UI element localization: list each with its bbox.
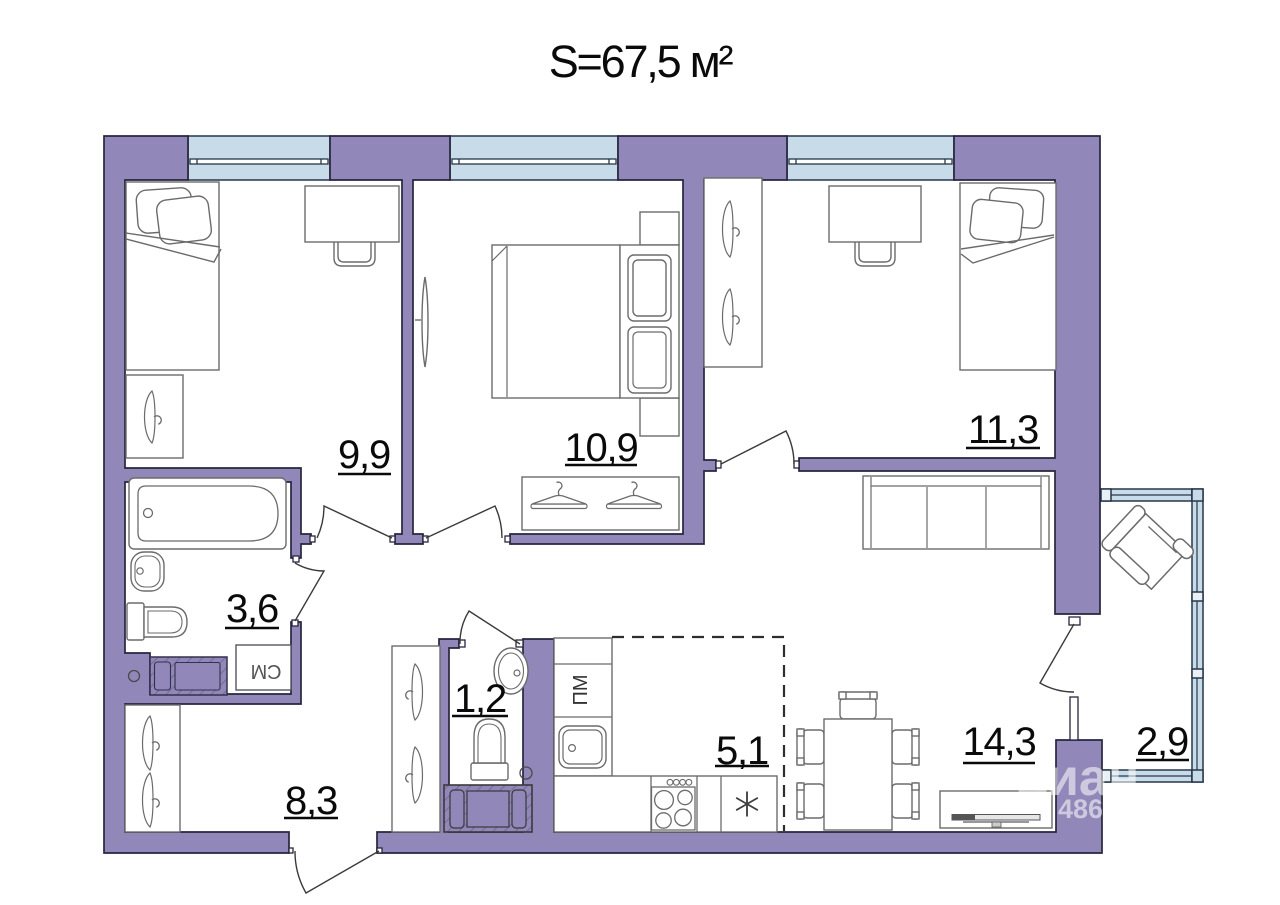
svg-text:3,6: 3,6 [226,587,278,631]
svg-text:S=67,5 м²: S=67,5 м² [549,36,734,87]
svg-text:9,9: 9,9 [338,433,390,477]
svg-text:8,3: 8,3 [285,779,337,823]
svg-text:11,3: 11,3 [968,408,1038,452]
svg-text:10,9: 10,9 [564,426,637,470]
svg-text:2,9: 2,9 [1136,720,1188,764]
svg-text:486: 486 [1058,794,1103,824]
svg-text:1,2: 1,2 [454,677,506,721]
svg-text:ПМ: ПМ [570,674,592,705]
svg-text:СМ: СМ [251,660,282,682]
